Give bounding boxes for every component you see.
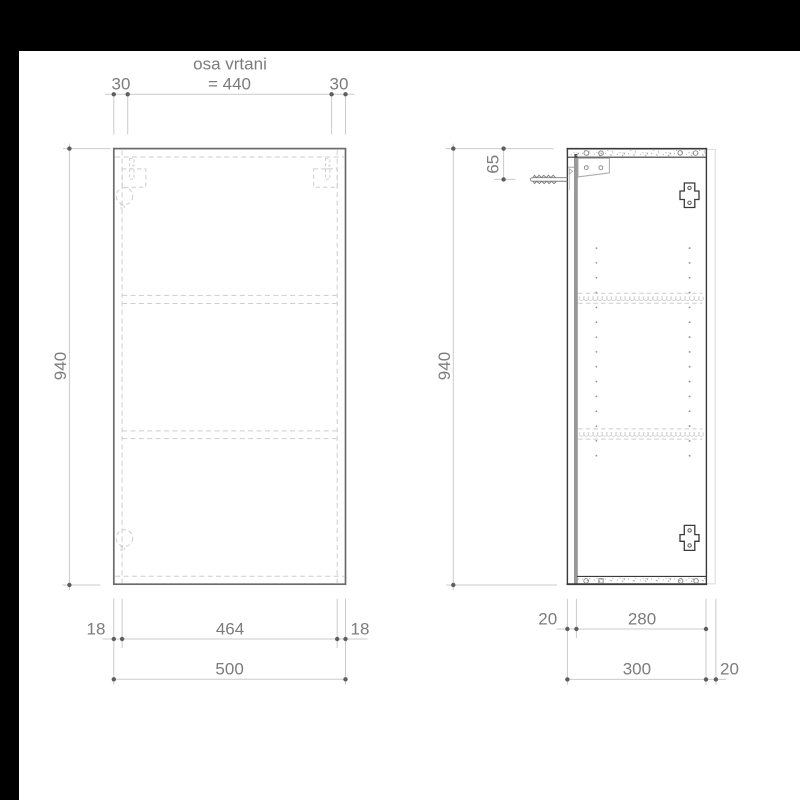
svg-text:30: 30 <box>330 75 349 94</box>
svg-text:940: 940 <box>51 352 70 380</box>
svg-text:280: 280 <box>628 609 656 628</box>
svg-text:500: 500 <box>215 660 243 679</box>
svg-text:18: 18 <box>351 619 370 638</box>
svg-text:940: 940 <box>435 352 454 380</box>
svg-text:osa vrtani: osa vrtani <box>193 54 267 73</box>
svg-text:65: 65 <box>484 155 503 174</box>
svg-text:18: 18 <box>87 619 106 638</box>
svg-text:30: 30 <box>112 75 131 94</box>
svg-text:20: 20 <box>538 609 557 628</box>
svg-text:300: 300 <box>623 660 651 679</box>
svg-text:20: 20 <box>720 660 739 679</box>
svg-text:464: 464 <box>216 619 244 638</box>
svg-text:= 440: = 440 <box>208 75 251 94</box>
